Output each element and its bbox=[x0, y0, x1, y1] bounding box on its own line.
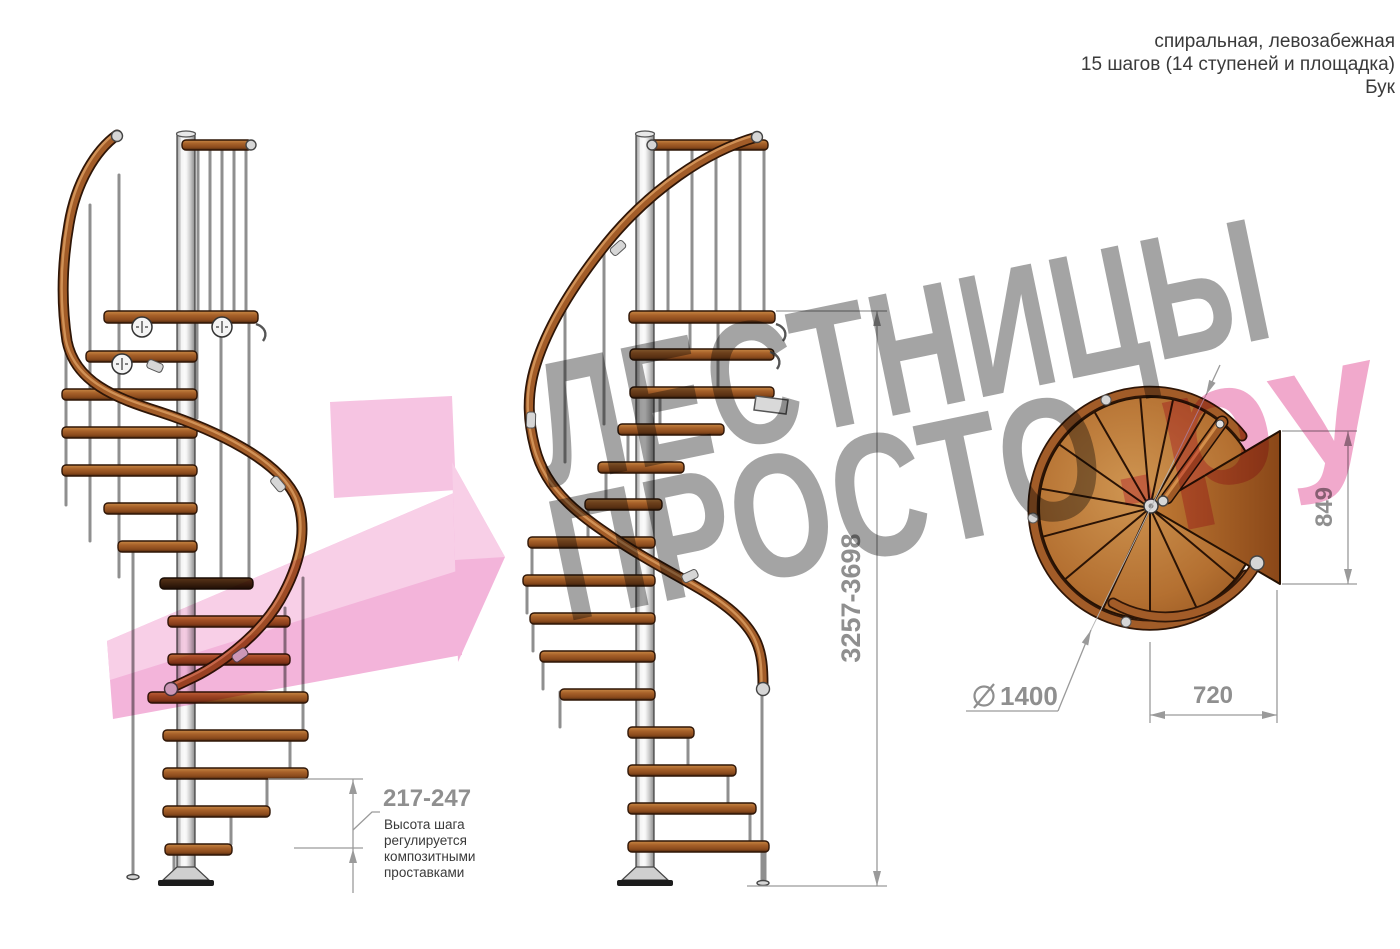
step bbox=[163, 730, 308, 741]
step bbox=[165, 844, 232, 855]
note-line: регулируется bbox=[384, 833, 467, 848]
pole-base-cone bbox=[622, 867, 668, 880]
landing-width-value: 720 bbox=[1193, 682, 1233, 709]
note-line: проставками bbox=[384, 865, 464, 880]
pink-arrow-watermark bbox=[107, 396, 505, 719]
step-bracket-hook bbox=[256, 324, 265, 341]
step bbox=[86, 351, 197, 362]
landing-platform bbox=[104, 311, 258, 323]
step bbox=[628, 841, 769, 852]
flange-discs bbox=[112, 317, 232, 374]
dim-step-height: 217-247 Высота шага регулируется компози… bbox=[268, 779, 475, 893]
step bbox=[62, 427, 197, 438]
step bbox=[628, 803, 756, 814]
step bbox=[628, 727, 694, 738]
diameter-value: 1400 bbox=[1000, 681, 1058, 711]
note-line: композитными bbox=[384, 849, 475, 864]
spiral-staircase-drawing: спиральная, левозабежная 15 шагов (14 ст… bbox=[0, 0, 1400, 949]
step bbox=[560, 689, 655, 700]
pole-base-cone bbox=[163, 867, 209, 880]
step bbox=[104, 503, 197, 514]
step bbox=[62, 465, 197, 476]
step bbox=[118, 541, 197, 552]
step bbox=[628, 765, 736, 776]
step-height-note: Высота шага регулируется композитными пр… bbox=[384, 817, 475, 880]
step-height-value: 217-247 bbox=[383, 785, 471, 812]
diameter-symbol-icon bbox=[974, 684, 994, 708]
base-plate bbox=[158, 880, 214, 886]
note-line: Высота шага bbox=[384, 817, 465, 832]
step bbox=[163, 768, 308, 779]
step bbox=[163, 806, 270, 817]
top-railing bbox=[182, 140, 256, 150]
drawing-svg: 3257-3698 849 720 bbox=[0, 0, 1400, 949]
base-plate bbox=[617, 880, 673, 886]
side-view-left bbox=[62, 131, 308, 887]
